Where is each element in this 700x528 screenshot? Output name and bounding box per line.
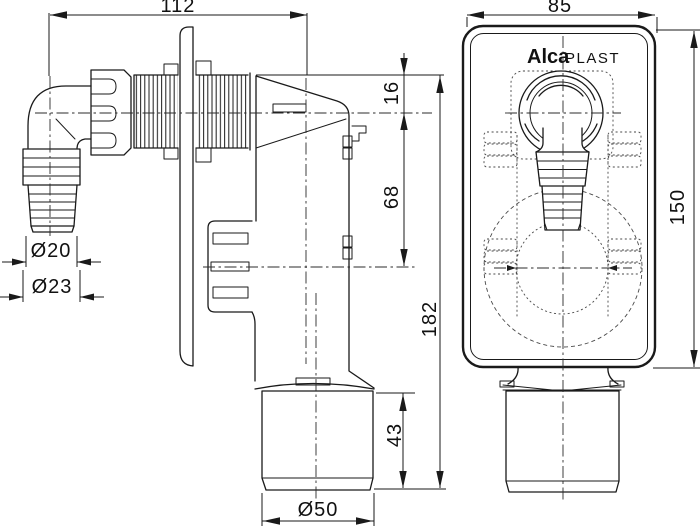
logo-text-regular: PLAST (565, 50, 620, 67)
dim-faceplate-height-label: 150 (667, 189, 689, 225)
alcaplast-logo: Alca PLAST (527, 46, 620, 68)
washing-machine-trap-drawing: Alca PLAST (0, 0, 700, 528)
dim-overall-height-label: 182 (419, 301, 441, 337)
side-view (23, 27, 432, 506)
dimension-d20: Ø20 (2, 240, 101, 266)
dimension-150: 150 (667, 31, 698, 367)
dimension-d50: Ø50 (262, 499, 374, 525)
dim-center-spacing-label: 68 (381, 185, 403, 209)
wall-plate (180, 27, 193, 366)
hose-barb-front (536, 125, 589, 231)
drawing-canvas: Alca PLAST (0, 0, 700, 528)
logo-text-bold: Alca (527, 46, 570, 68)
dim-faceplate-width-label: 85 (548, 0, 572, 17)
threaded-pipe (134, 61, 250, 162)
hose-barb-tip (28, 185, 77, 232)
front-view: Alca PLAST (463, 26, 655, 500)
dim-barb-outer-diameter-label: Ø23 (32, 276, 73, 298)
dim-inlet-offset-label: 16 (381, 81, 403, 105)
dim-overall-width-label: 112 (161, 0, 196, 17)
dimension-112: 112 (50, 0, 307, 19)
mounting-hook (352, 126, 366, 141)
outlet-spigot-side (262, 391, 373, 490)
elbow-fitting (28, 86, 91, 148)
dimension-d23: Ø23 (0, 276, 104, 301)
dimension-85: 85 (467, 0, 655, 19)
cap-nut (91, 70, 131, 155)
dim-barb-inner-diameter-label: Ø20 (31, 240, 72, 262)
dimension-182: 182 (419, 75, 444, 488)
dim-outlet-length-label: 43 (384, 423, 406, 447)
dimension-43: 43 (384, 393, 407, 488)
outlet-spigot-front (500, 367, 624, 492)
dimension-16: 16 (381, 53, 408, 266)
dim-outlet-diameter-label: Ø50 (298, 499, 339, 521)
hose-barb-ribbed-section (23, 149, 80, 185)
